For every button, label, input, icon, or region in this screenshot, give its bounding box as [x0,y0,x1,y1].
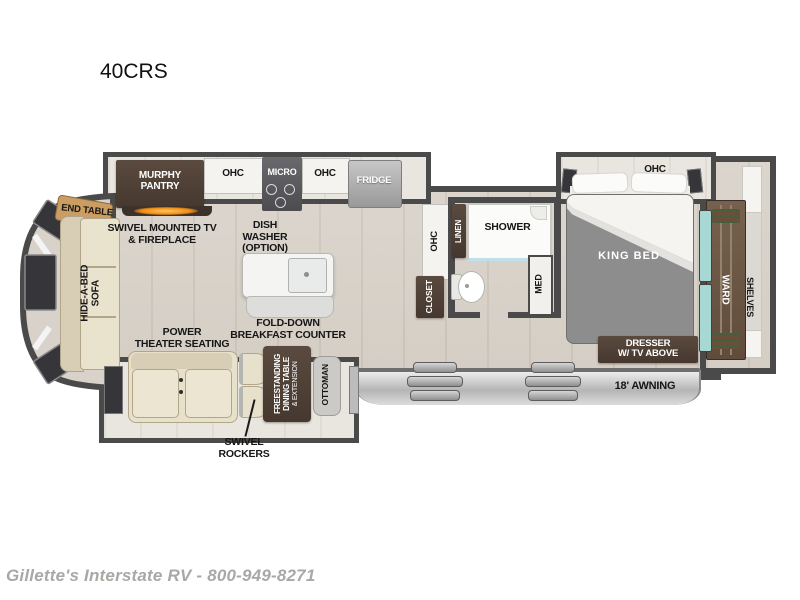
hanger-icon [712,333,740,349]
theater-seating [128,351,238,423]
dresser-label: DRESSER W/ TV ABOVE [598,339,698,360]
cupholder-icon [179,390,183,394]
stove-burner-icon [284,184,295,195]
awning-label: 18' AWNING [598,380,692,392]
step-bar [410,390,460,401]
king-bed-label: KING BED [576,250,682,262]
micro-label: MICRO [260,168,304,178]
slideout-window-icon [104,366,123,414]
dishwasher-label: DISH WASHER (OPTION) [215,220,315,255]
pillow [631,172,688,194]
closet-label: CLOSET [416,276,444,318]
entry-steps [524,362,582,401]
toilet-bowl [458,271,485,303]
toilet-flush-icon [465,284,469,288]
ottoman-label: OTTOMAN [313,356,339,414]
swivel-rockers-label: SWIVEL ROCKERS [194,437,294,460]
step-bar [528,390,578,401]
ohc-right-label: OHC [302,168,348,179]
linen-label: LINEN [452,204,466,258]
rear-window-icon [25,255,56,310]
hanger-icon [712,209,740,223]
bath-ohc-label: OHC [422,208,448,274]
step-bar [525,376,581,387]
awning-post [349,366,359,414]
ohc-left-label: OHC [204,168,262,179]
floorplan-page: 40CRS 18' AWNING MURPHY PANTRY [0,0,800,600]
step-bar [407,376,463,387]
dining-table-label: FREESTANDING DINING TABLE & EXTENSION [263,346,311,422]
fold-down-counter [246,296,334,318]
step-bar [531,362,575,373]
pillow [572,172,629,194]
step-bar [413,362,457,373]
stove-burner-icon [275,197,286,208]
king-bed [566,194,694,344]
shower-label: SHOWER [467,222,548,234]
stove-burner-icon [266,184,277,195]
page-title: 40CRS [100,60,168,84]
sink-faucet-icon [304,272,309,277]
murphy-pantry-label: MURPHY PANTRY [116,170,204,192]
shelves-label: SHELVES [740,252,760,342]
ward-label: WARD [708,250,742,330]
bathroom-wall-bottom [448,312,480,318]
fireplace-glow-icon [134,207,198,215]
bathroom-wall-right [554,197,561,318]
theater-seat-cushion [185,369,232,418]
theater-seating-label: POWER THEATER SEATING [108,327,256,350]
theater-backrest [131,353,232,369]
fridge-label: FRIDGE [348,176,400,186]
cupholder-icon [179,378,183,382]
dealer-watermark: Gillette's Interstate RV - 800-949-8271 [6,566,315,586]
entry-steps [406,362,464,401]
med-label: MED [528,258,549,310]
theater-seat-cushion [132,369,179,418]
sofa-label: HIDE-A-BED SOFA [70,230,110,356]
